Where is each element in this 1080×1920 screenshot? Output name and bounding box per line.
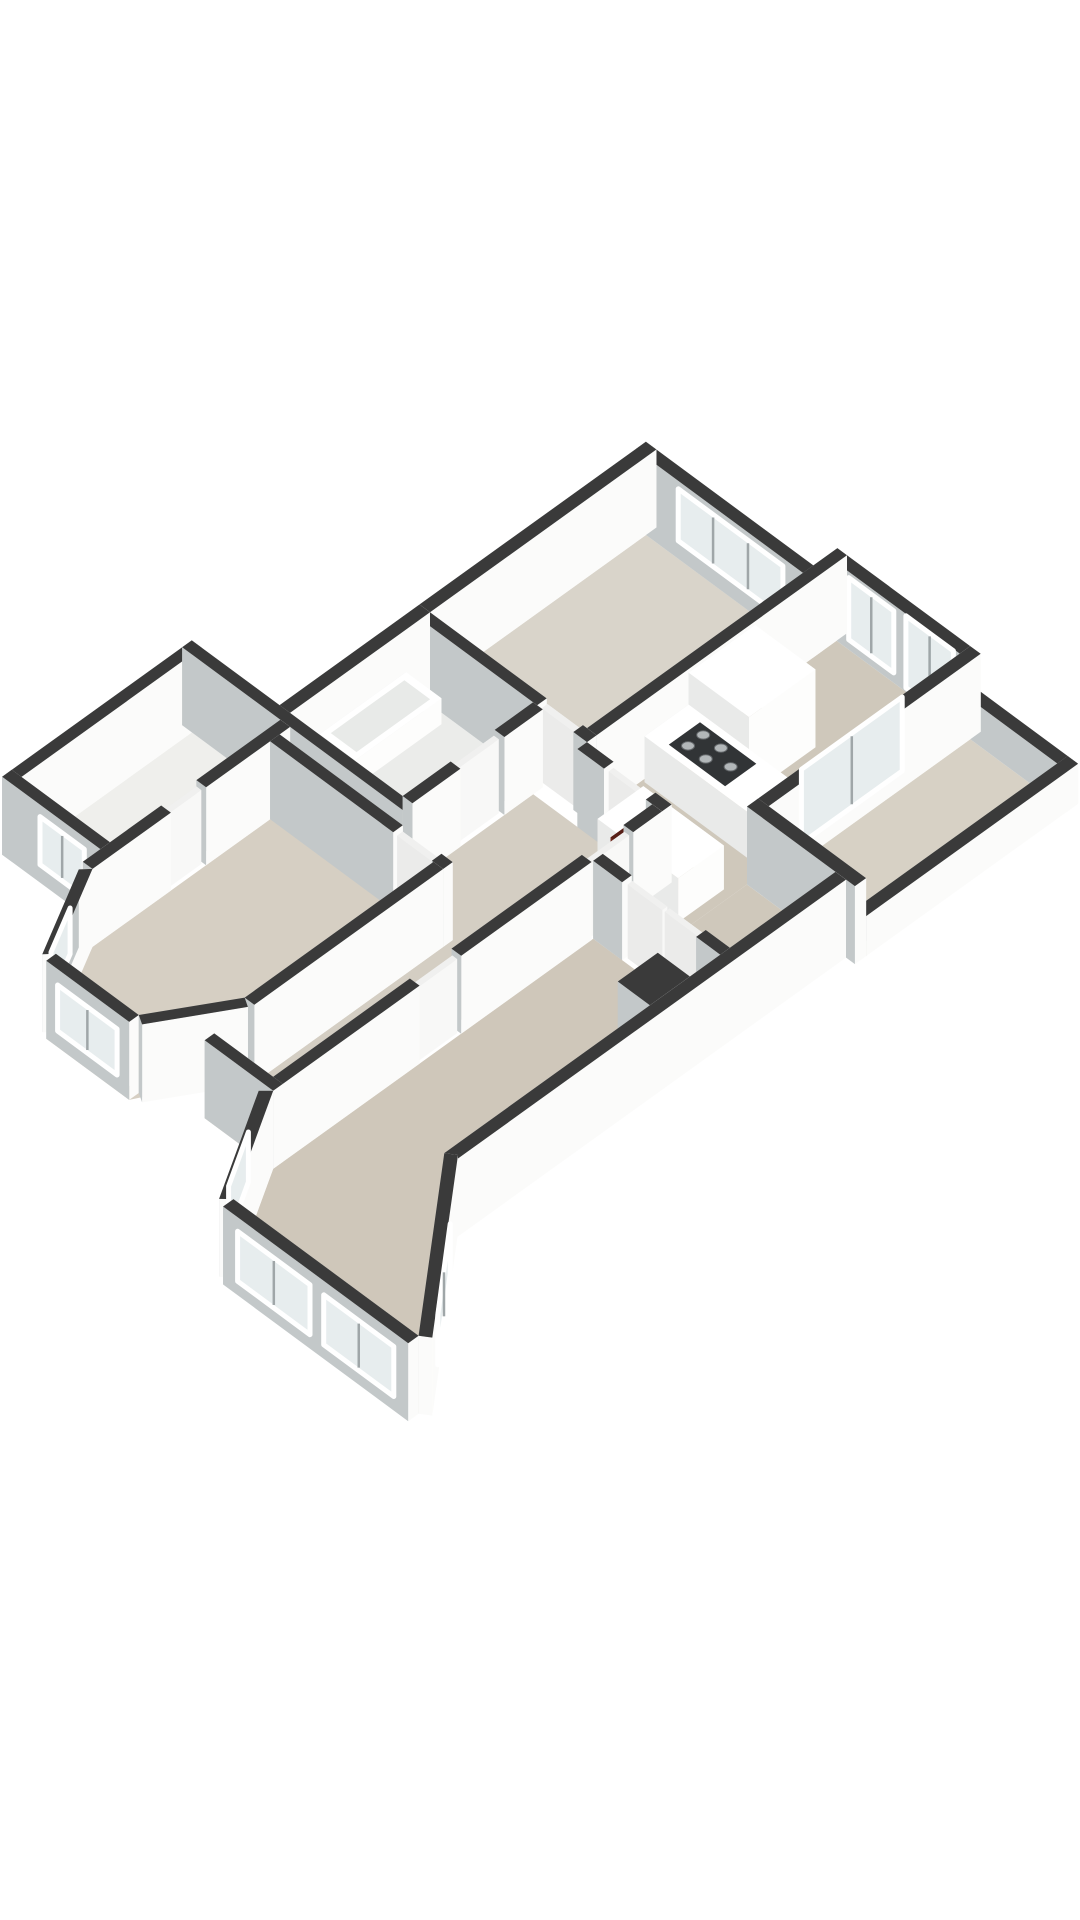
- stove-burner: [714, 744, 727, 752]
- stove-burner: [697, 731, 710, 739]
- face: [443, 862, 453, 947]
- stove-burner: [724, 763, 737, 771]
- page-background: [0, 0, 1080, 1920]
- face: [855, 878, 866, 964]
- face: [129, 1015, 139, 1100]
- floorplan-3d-render: [0, 0, 1080, 1920]
- stove-burner: [699, 755, 712, 763]
- stove-burner: [682, 742, 695, 750]
- face: [408, 1336, 418, 1422]
- face: [139, 1015, 142, 1102]
- face: [419, 1336, 433, 1416]
- face: [273, 1084, 283, 1169]
- face: [662, 805, 672, 890]
